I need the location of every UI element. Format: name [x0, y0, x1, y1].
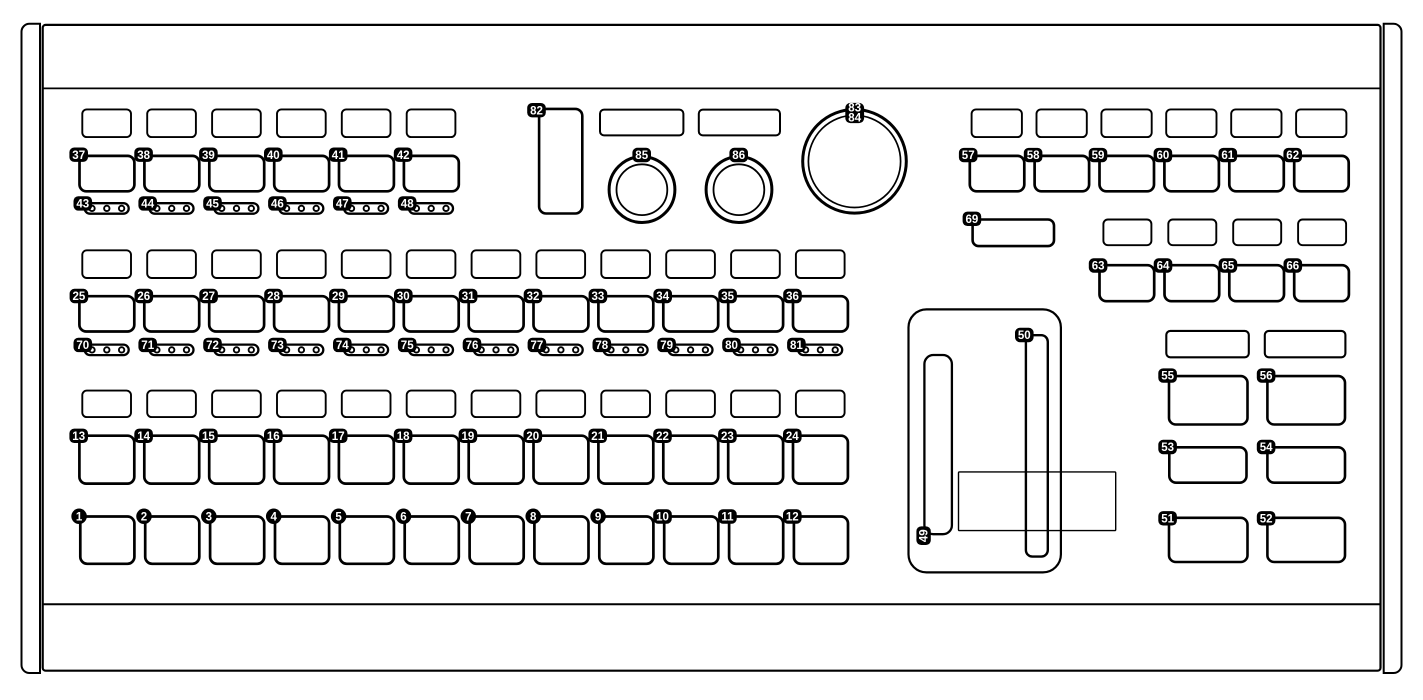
svg-text:19: 19 [462, 431, 475, 443]
svg-text:1: 1 [76, 511, 83, 523]
svg-text:51: 51 [1161, 513, 1174, 525]
svg-text:65: 65 [1222, 261, 1235, 273]
svg-text:34: 34 [656, 291, 669, 303]
svg-text:15: 15 [202, 431, 215, 443]
svg-text:70: 70 [76, 340, 89, 352]
svg-text:47: 47 [336, 199, 349, 211]
svg-text:37: 37 [72, 150, 85, 162]
svg-text:71: 71 [141, 340, 154, 352]
svg-text:5: 5 [335, 511, 342, 523]
svg-text:72: 72 [206, 340, 219, 352]
svg-text:73: 73 [271, 340, 284, 352]
svg-text:64: 64 [1157, 261, 1170, 273]
svg-text:44: 44 [141, 199, 154, 211]
svg-text:25: 25 [73, 291, 86, 303]
svg-text:74: 74 [336, 340, 349, 352]
svg-text:21: 21 [591, 431, 604, 443]
svg-text:18: 18 [397, 431, 410, 443]
svg-text:69: 69 [966, 214, 979, 226]
svg-text:84: 84 [848, 113, 861, 125]
svg-text:31: 31 [462, 291, 475, 303]
svg-text:39: 39 [202, 150, 215, 162]
svg-text:28: 28 [267, 291, 280, 303]
svg-text:23: 23 [721, 431, 734, 443]
svg-text:26: 26 [137, 291, 150, 303]
svg-text:61: 61 [1221, 150, 1234, 162]
svg-text:60: 60 [1157, 150, 1170, 162]
svg-text:80: 80 [725, 340, 738, 352]
svg-text:13: 13 [72, 431, 85, 443]
svg-text:22: 22 [656, 431, 669, 443]
svg-text:81: 81 [790, 340, 803, 352]
svg-text:63: 63 [1092, 261, 1105, 273]
svg-text:58: 58 [1027, 150, 1040, 162]
svg-text:46: 46 [271, 199, 284, 211]
svg-text:49: 49 [919, 529, 931, 542]
svg-text:85: 85 [635, 150, 648, 162]
svg-text:82: 82 [530, 105, 543, 117]
svg-text:62: 62 [1286, 150, 1299, 162]
svg-text:41: 41 [332, 150, 345, 162]
svg-text:56: 56 [1260, 371, 1273, 383]
svg-text:11: 11 [721, 512, 734, 524]
svg-text:66: 66 [1286, 261, 1299, 273]
svg-text:33: 33 [592, 291, 605, 303]
svg-text:10: 10 [656, 512, 669, 524]
svg-text:2: 2 [141, 511, 147, 523]
svg-text:42: 42 [397, 150, 410, 162]
svg-text:27: 27 [202, 291, 215, 303]
svg-text:8: 8 [530, 511, 537, 523]
svg-text:24: 24 [786, 431, 799, 443]
svg-text:4: 4 [270, 511, 277, 523]
svg-text:9: 9 [595, 511, 601, 523]
svg-text:78: 78 [595, 340, 608, 352]
svg-text:53: 53 [1161, 442, 1174, 454]
svg-text:55: 55 [1161, 371, 1174, 383]
svg-text:59: 59 [1092, 150, 1105, 162]
svg-text:3: 3 [206, 511, 212, 523]
svg-text:16: 16 [267, 431, 280, 443]
svg-text:20: 20 [526, 431, 539, 443]
svg-text:52: 52 [1260, 513, 1273, 525]
svg-text:77: 77 [531, 340, 544, 352]
svg-text:32: 32 [527, 291, 540, 303]
svg-text:30: 30 [397, 291, 410, 303]
svg-text:17: 17 [332, 431, 345, 443]
svg-text:36: 36 [786, 291, 799, 303]
svg-text:38: 38 [137, 150, 150, 162]
svg-text:35: 35 [721, 291, 734, 303]
svg-text:75: 75 [401, 340, 414, 352]
svg-text:40: 40 [267, 150, 280, 162]
svg-text:12: 12 [786, 512, 799, 524]
svg-text:48: 48 [401, 199, 414, 211]
svg-text:79: 79 [660, 340, 673, 352]
svg-text:7: 7 [465, 511, 471, 523]
svg-text:29: 29 [332, 291, 345, 303]
svg-text:43: 43 [76, 199, 89, 211]
svg-text:86: 86 [732, 150, 745, 162]
svg-text:6: 6 [400, 511, 406, 523]
svg-text:76: 76 [466, 340, 479, 352]
svg-text:54: 54 [1260, 442, 1273, 454]
svg-text:45: 45 [206, 199, 219, 211]
svg-text:14: 14 [137, 431, 150, 443]
svg-text:50: 50 [1018, 330, 1031, 342]
svg-text:57: 57 [962, 150, 975, 162]
